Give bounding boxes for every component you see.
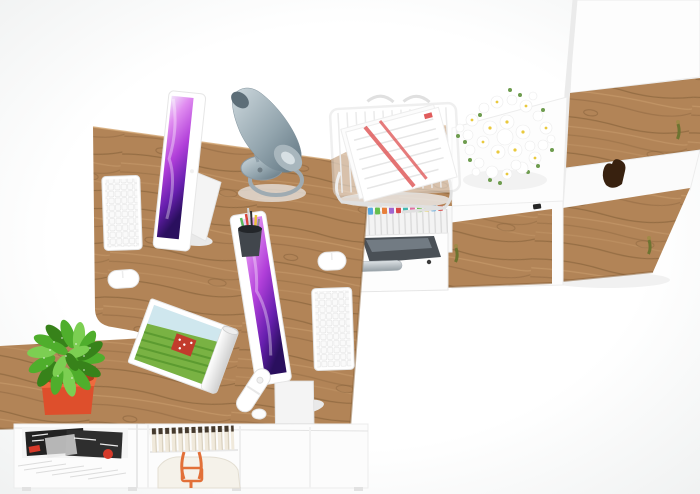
- mouse-left: [107, 269, 139, 289]
- printer-knob: [427, 260, 431, 264]
- lower-shelf-unit: [14, 424, 368, 491]
- tall-cabinet-top: [570, 0, 700, 93]
- keyboard-left: [102, 175, 143, 250]
- book-row: [150, 426, 235, 453]
- desk-grommet: [252, 409, 266, 419]
- workspace-render: [0, 0, 700, 494]
- lamp-base-hole: [258, 168, 263, 173]
- pen-cup-opening: [238, 225, 262, 233]
- mouse-right: [318, 251, 347, 270]
- keyboard-right: [312, 287, 355, 370]
